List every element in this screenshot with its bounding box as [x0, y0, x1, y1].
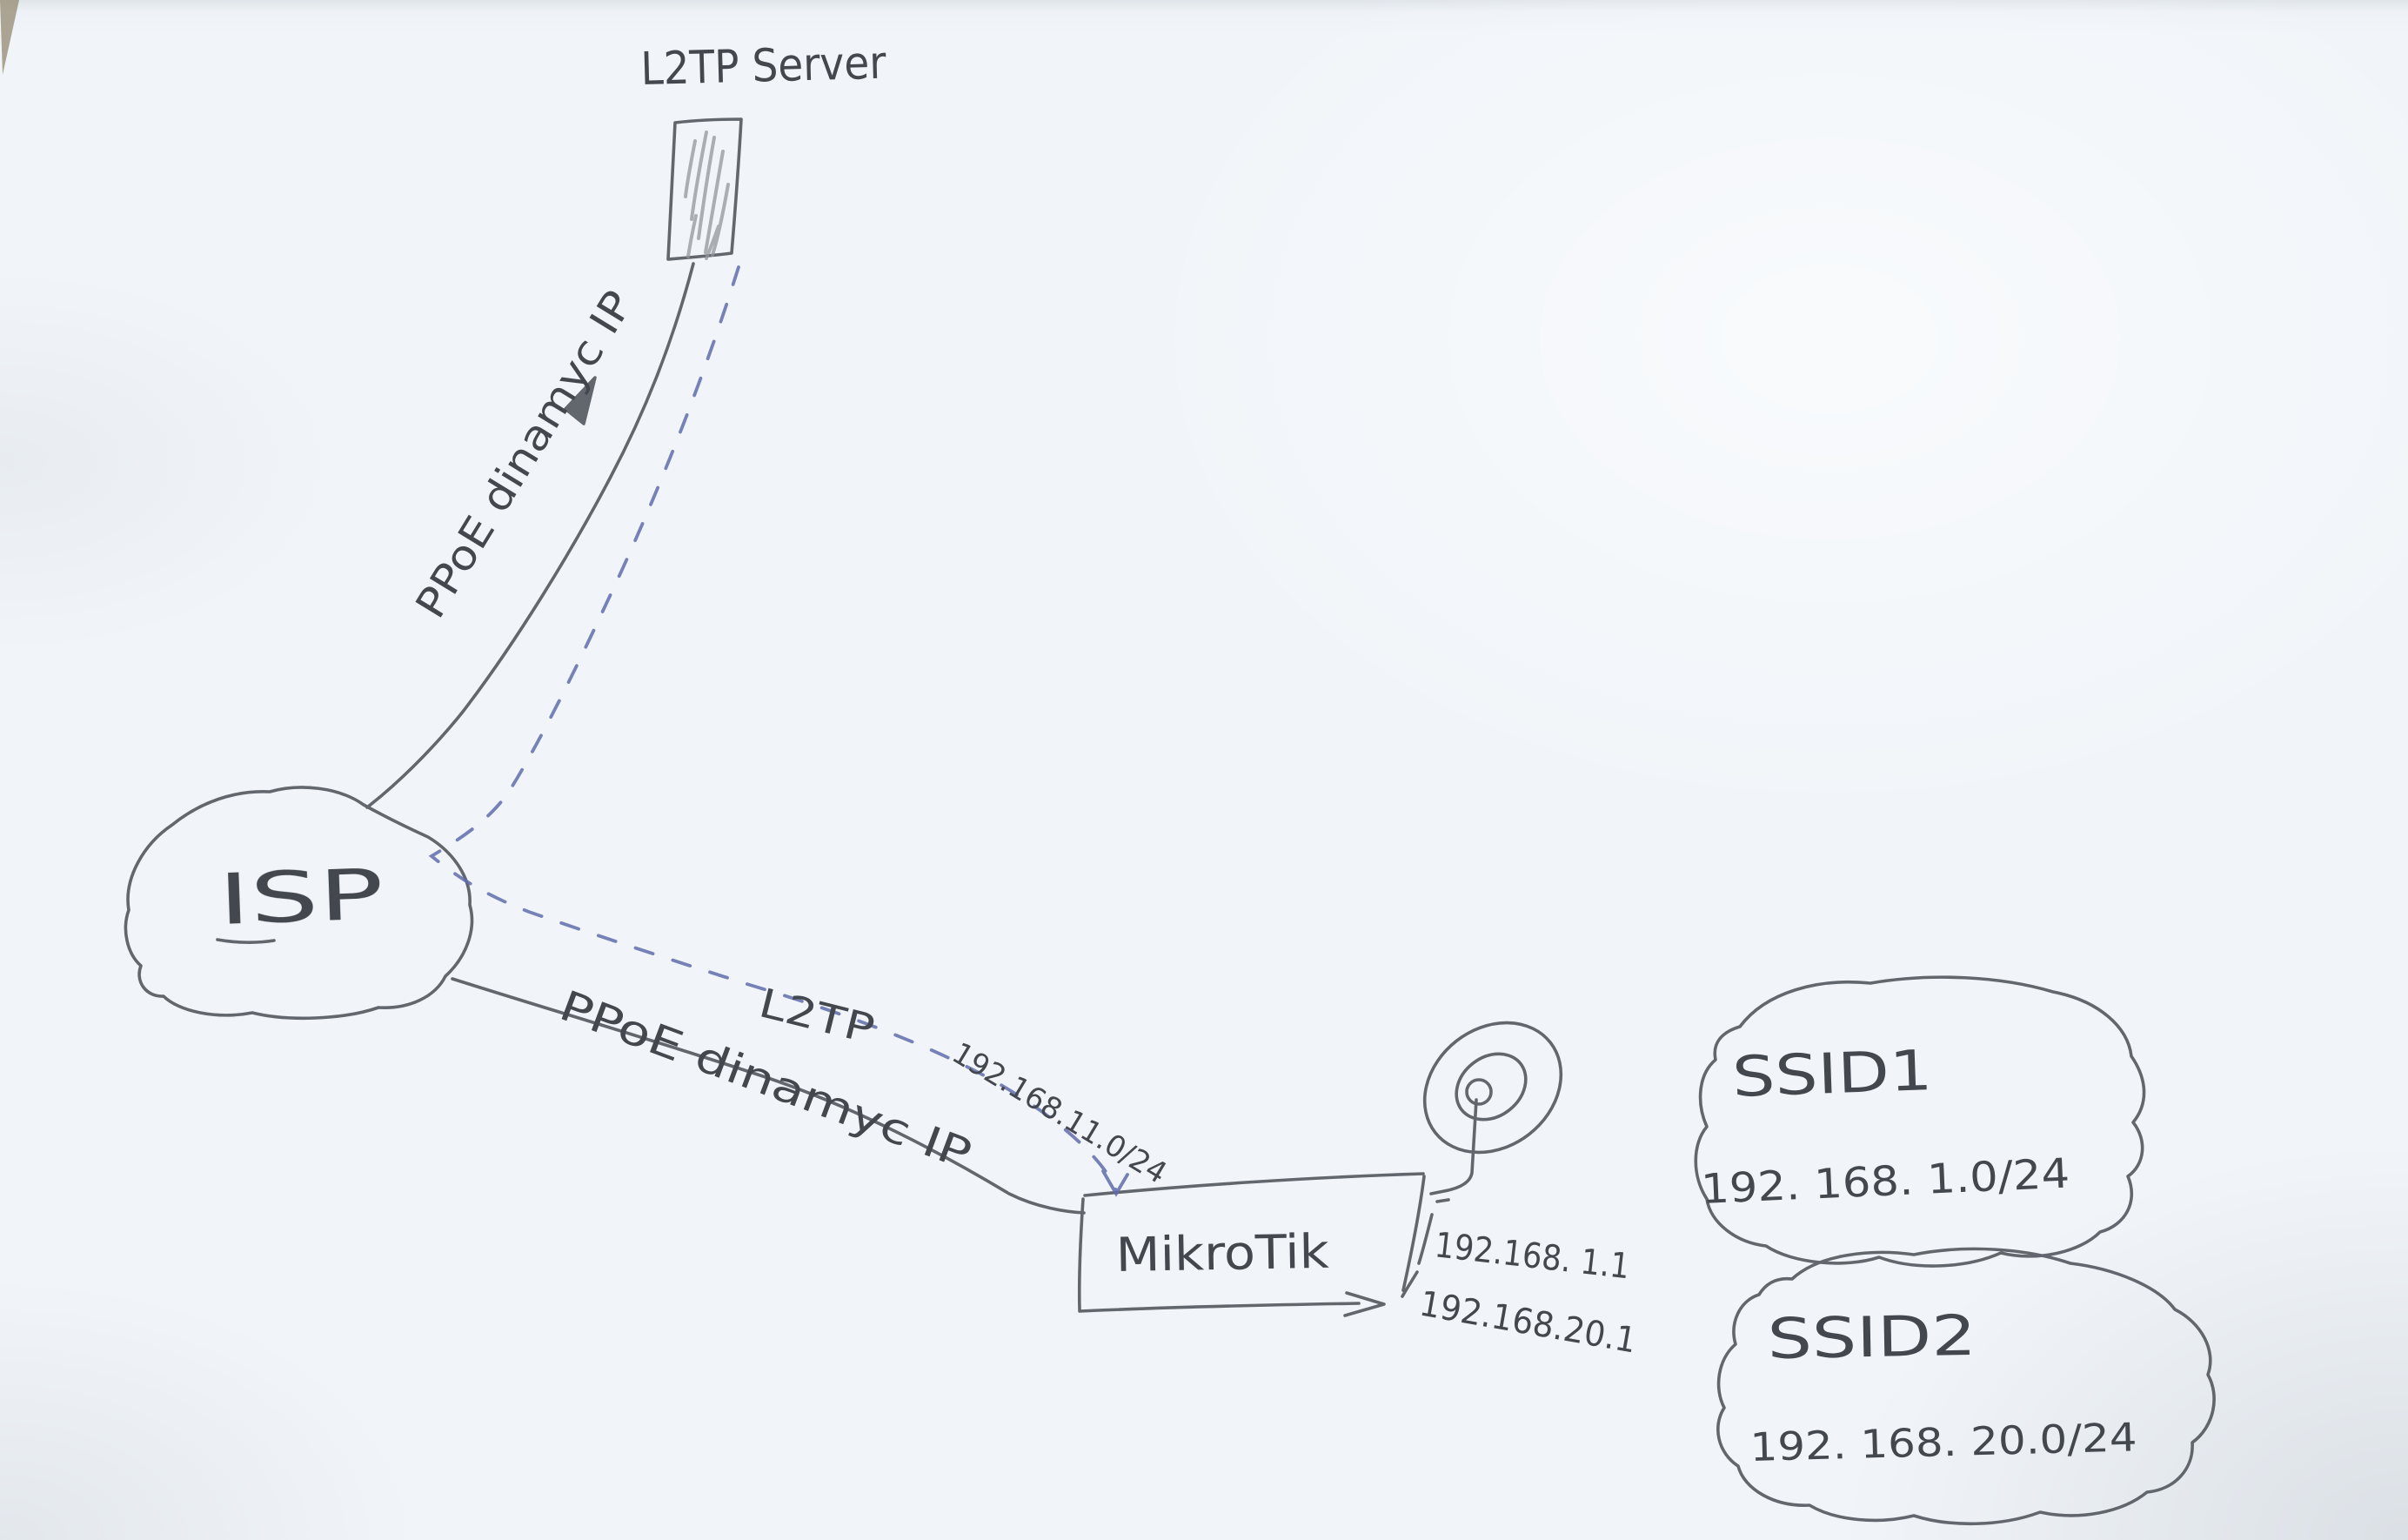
- antenna-ring-outer: [1399, 996, 1587, 1180]
- isp-label: ISP: [217, 854, 385, 941]
- paper-corner-fold: [0, 0, 19, 75]
- ssid2-label: SSID2: [1767, 1304, 1977, 1372]
- ssid2-cloud: [1718, 1249, 2214, 1523]
- l2tp-tunnel-label: L2TP: [754, 979, 879, 1053]
- server-hatching: [686, 132, 728, 258]
- paper-photo: L2TP Server PPoE dinamyc IP ISP L2TP 192…: [0, 0, 2408, 1540]
- antenna-ring-inner: [1467, 1080, 1491, 1104]
- wifi-antenna-icon: [1399, 996, 1587, 1202]
- antenna-mast-tick: [1437, 1200, 1448, 1202]
- ssid1-subnet-label: 192. 168. 1.0/24: [1700, 1150, 2070, 1214]
- ssid1-label: SSID1: [1731, 1039, 1933, 1110]
- mikrotik-lan-ip-2-label: 192.168.20.1: [1416, 1284, 1639, 1362]
- ssid1-cloud: [1696, 977, 2144, 1266]
- mikrotik-lan-ip-1-label: 192.168. 1.1: [1433, 1225, 1632, 1287]
- mikrotik-label: MikroTik: [1115, 1224, 1330, 1282]
- ip-slash-1: [1419, 1215, 1432, 1263]
- l2tp-server-label: L2TP Server: [640, 37, 887, 96]
- pppoe-line-server: [367, 264, 693, 807]
- ssid2-subnet-label: 192. 168. 20.0/24: [1749, 1414, 2137, 1470]
- pppoe-server-link-label: PPoE dinamyc IP: [406, 283, 643, 626]
- l2tp-tunnel-subnet-label: 192.168.11.0/24: [946, 1035, 1173, 1190]
- diagram-canvas: L2TP Server PPoE dinamyc IP ISP L2TP 192…: [0, 0, 2408, 1540]
